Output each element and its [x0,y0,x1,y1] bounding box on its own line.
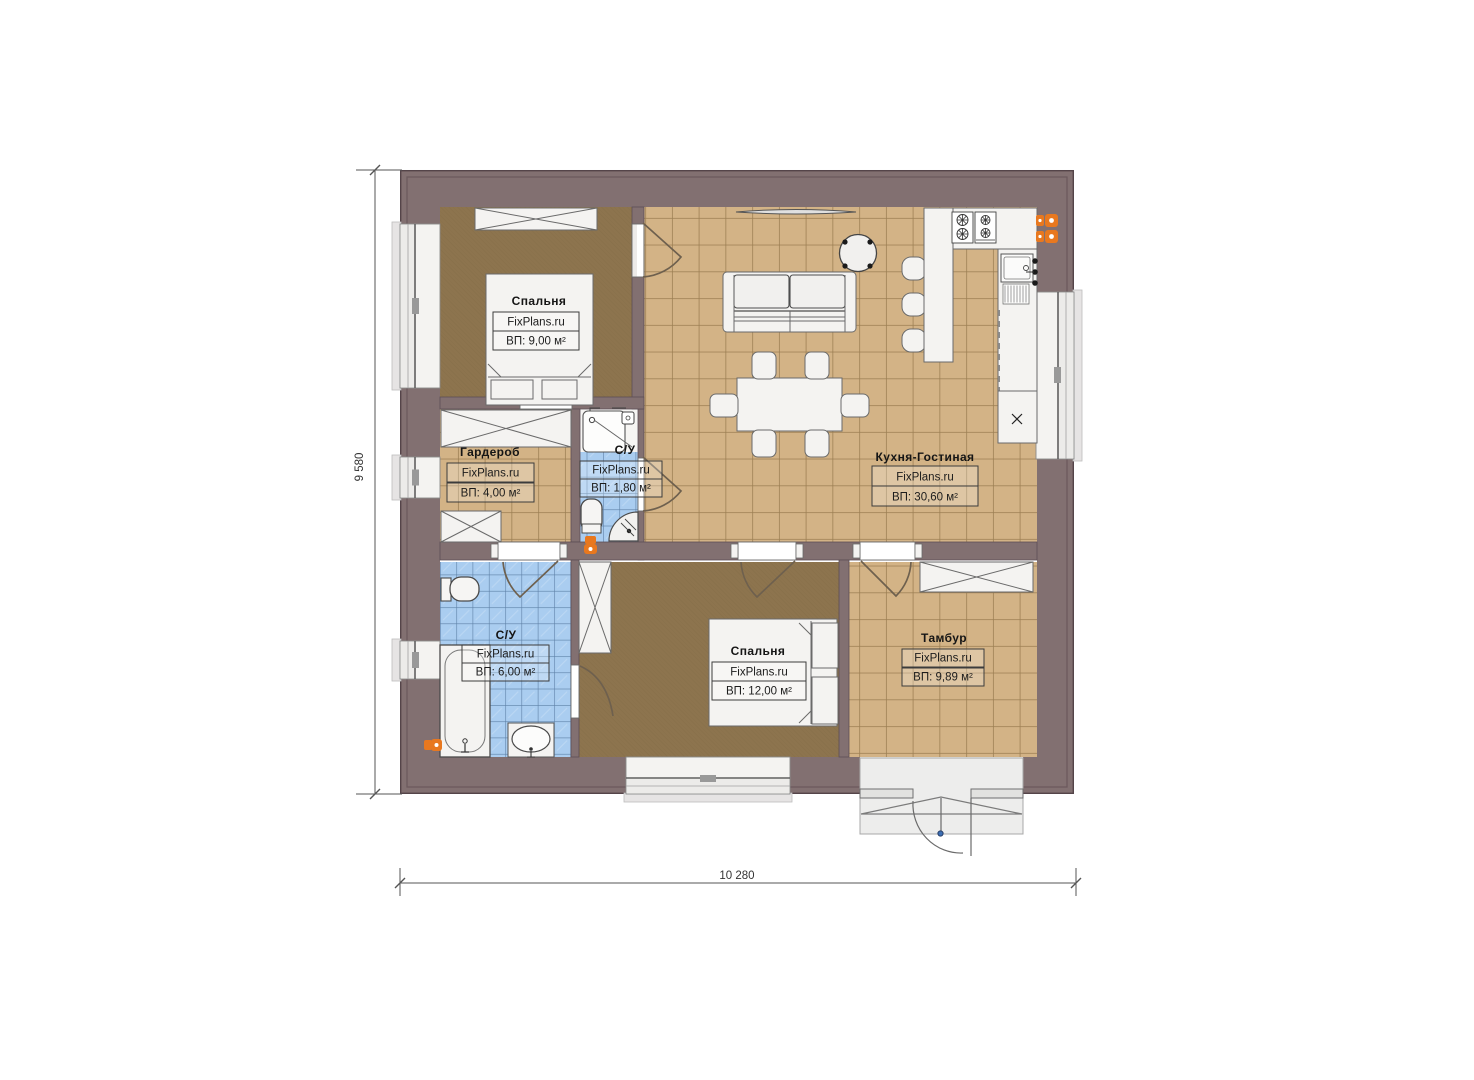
svg-text:ВП: 1,80 м²: ВП: 1,80 м² [591,483,651,495]
svg-text:С/У: С/У [496,628,517,642]
svg-text:FixPlans.ru: FixPlans.ru [896,472,954,484]
svg-text:FixPlans.ru: FixPlans.ru [730,667,788,679]
svg-text:ВП: 4,00 м²: ВП: 4,00 м² [461,488,521,500]
svg-text:Спальня: Спальня [512,294,567,308]
svg-text:10 280: 10 280 [719,870,754,882]
svg-text:FixPlans.ru: FixPlans.ru [592,465,650,477]
svg-text:С/У: С/У [615,443,636,457]
svg-text:ВП: 9,89 м²: ВП: 9,89 м² [913,672,973,684]
svg-text:FixPlans.ru: FixPlans.ru [914,653,972,665]
svg-text:Спальня: Спальня [731,644,786,658]
svg-text:FixPlans.ru: FixPlans.ru [507,317,565,329]
svg-text:ВП: 9,00 м²: ВП: 9,00 м² [506,336,566,348]
svg-text:ВП: 30,60 м²: ВП: 30,60 м² [892,492,958,504]
svg-text:FixPlans.ru: FixPlans.ru [477,649,535,661]
svg-text:FixPlans.ru: FixPlans.ru [462,468,520,480]
svg-text:Кухня-Гостиная: Кухня-Гостиная [876,450,975,464]
svg-text:ВП: 6,00 м²: ВП: 6,00 м² [476,667,536,679]
svg-text:Тамбур: Тамбур [921,631,967,645]
svg-text:ВП: 12,00 м²: ВП: 12,00 м² [726,686,792,698]
svg-text:Гардероб: Гардероб [460,445,520,459]
svg-text:9 580: 9 580 [354,453,366,482]
